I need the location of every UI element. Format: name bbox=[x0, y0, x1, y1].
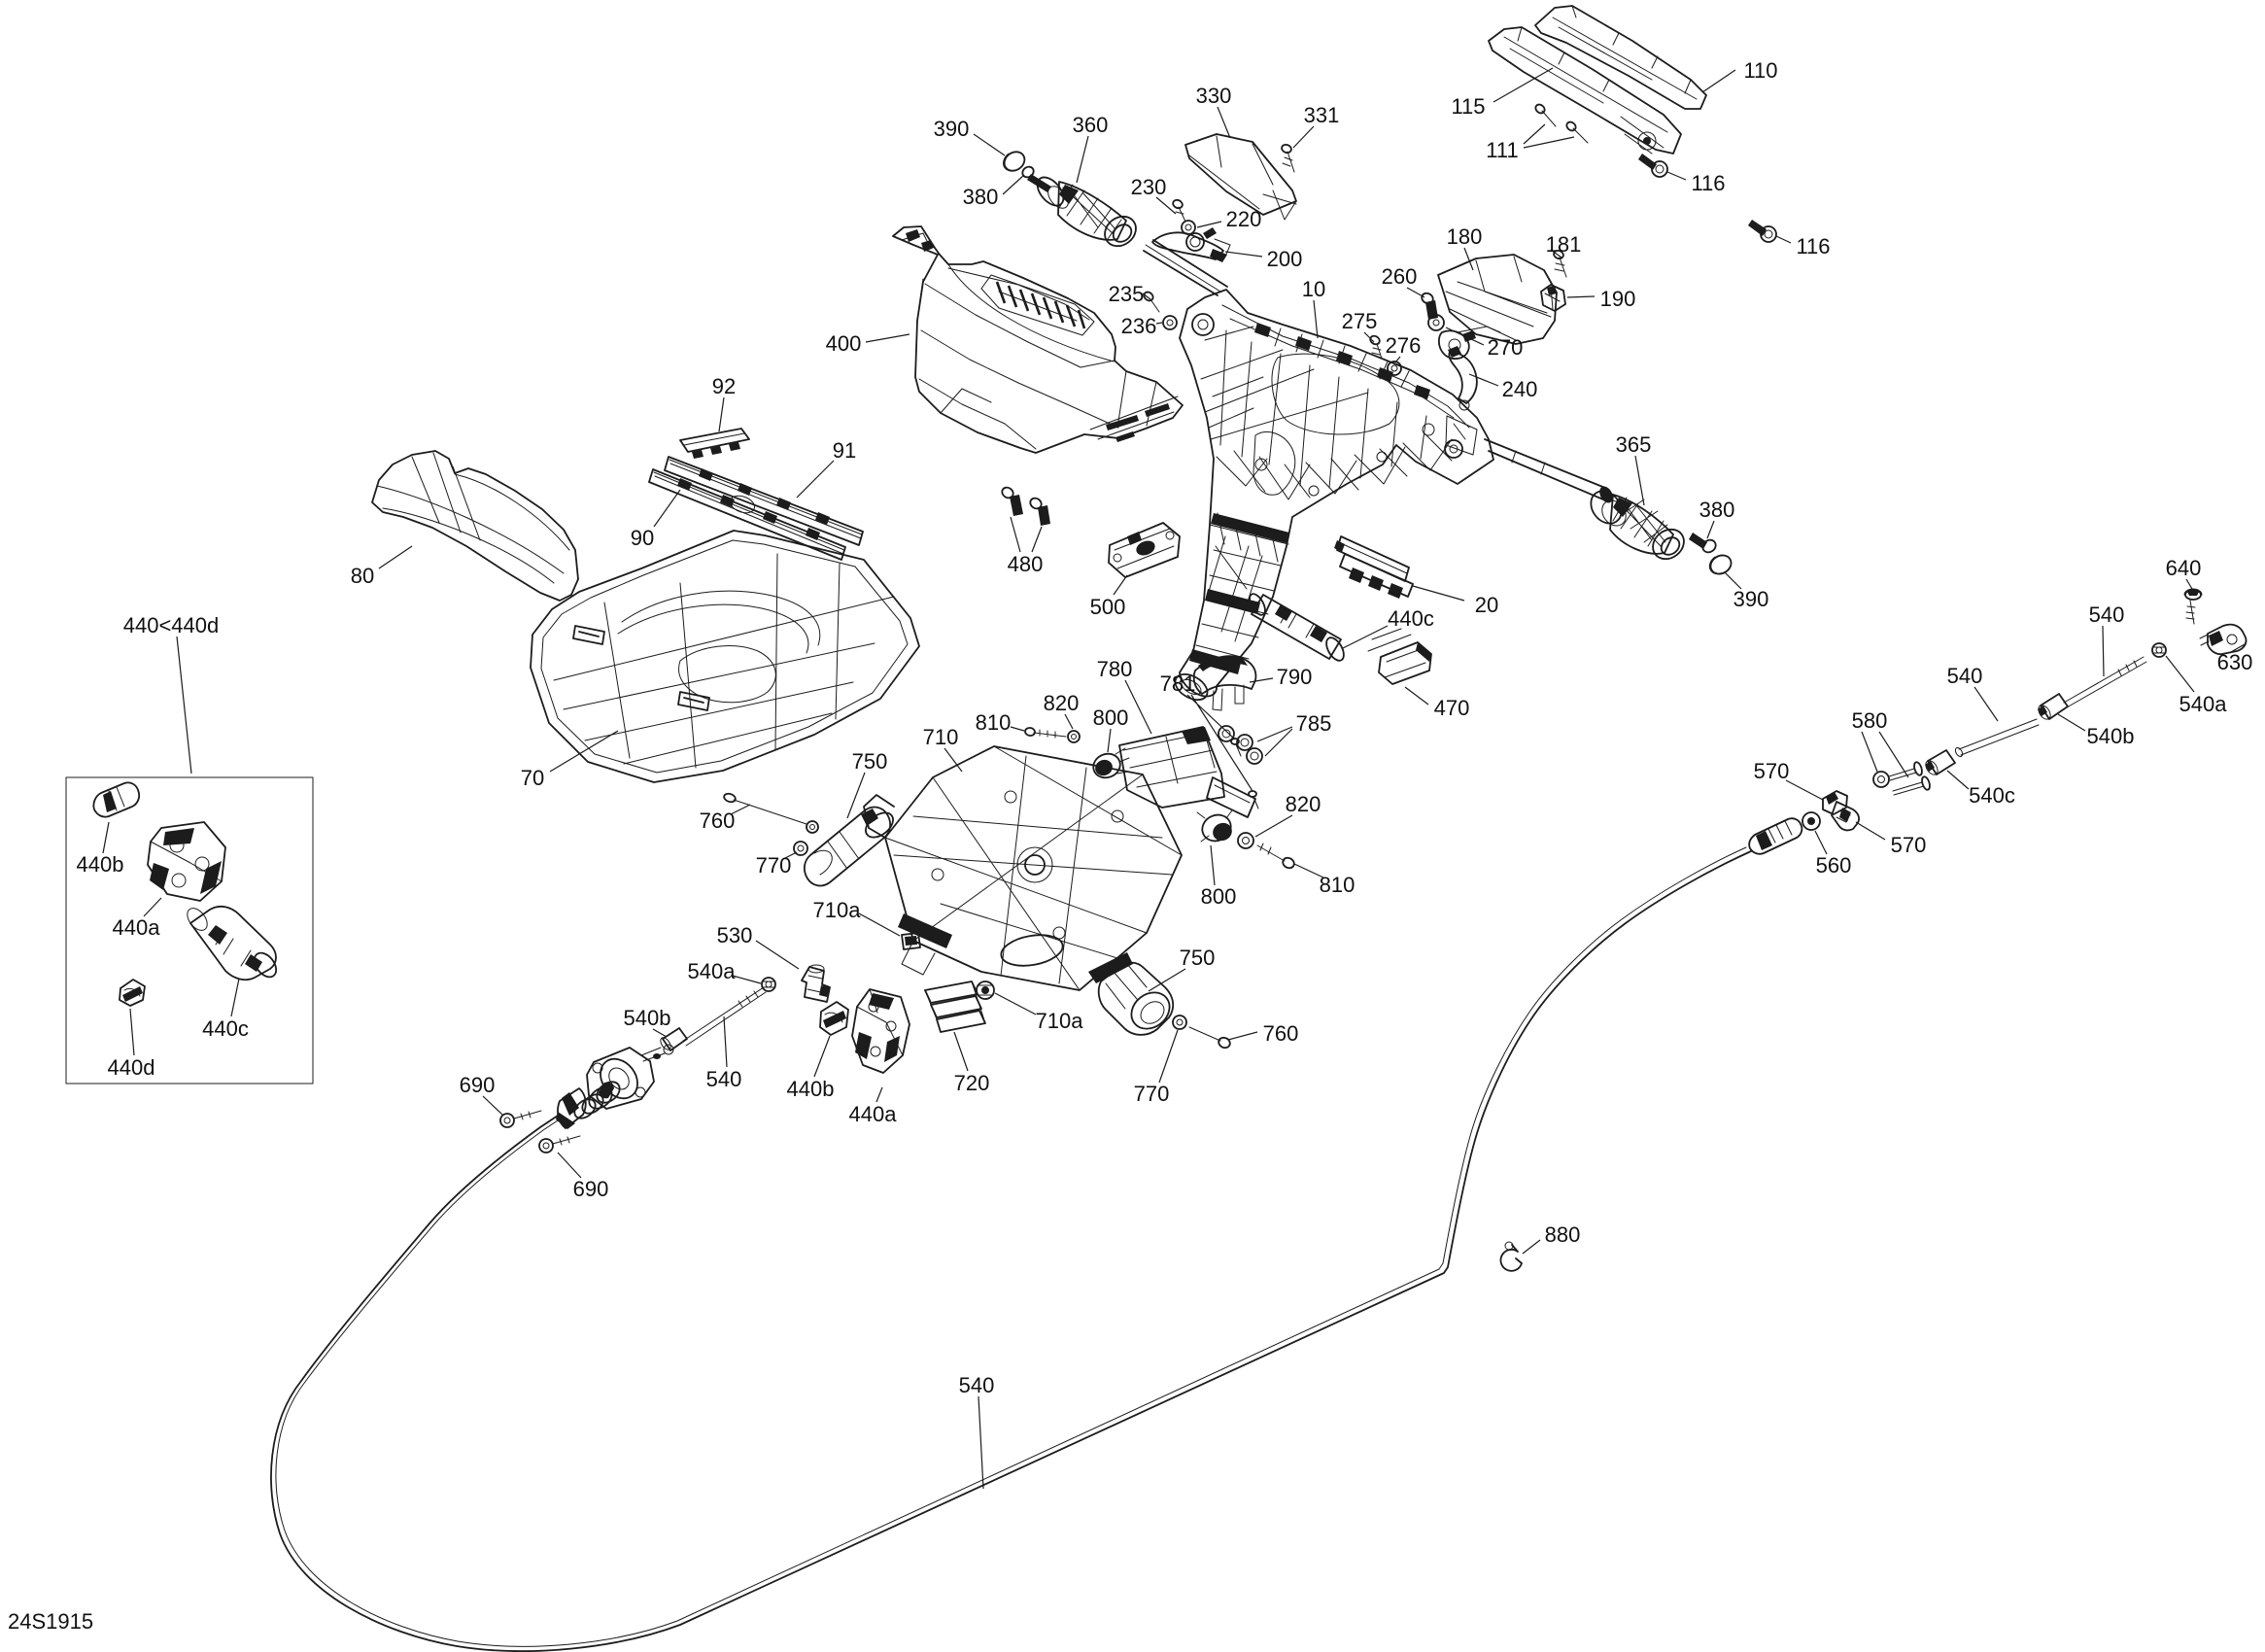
svg-text:570: 570 bbox=[1754, 759, 1790, 783]
svg-text:380: 380 bbox=[1699, 498, 1735, 522]
svg-text:690: 690 bbox=[573, 1177, 609, 1201]
svg-text:781: 781 bbox=[1160, 671, 1196, 696]
svg-text:540b: 540b bbox=[624, 1006, 671, 1030]
svg-text:540c: 540c bbox=[1969, 783, 2015, 808]
svg-text:24S1915: 24S1915 bbox=[8, 1609, 93, 1634]
svg-text:770: 770 bbox=[1134, 1082, 1170, 1106]
svg-text:440a: 440a bbox=[113, 915, 161, 940]
svg-text:480: 480 bbox=[1008, 552, 1044, 576]
svg-text:500: 500 bbox=[1090, 595, 1126, 619]
svg-text:111: 111 bbox=[1486, 138, 1518, 162]
svg-text:690: 690 bbox=[460, 1073, 496, 1097]
svg-text:530: 530 bbox=[717, 923, 753, 947]
svg-text:116: 116 bbox=[1691, 171, 1725, 195]
svg-text:820: 820 bbox=[1286, 792, 1321, 816]
svg-text:236: 236 bbox=[1121, 314, 1157, 338]
svg-text:785: 785 bbox=[1296, 711, 1332, 736]
svg-text:80: 80 bbox=[351, 564, 374, 588]
svg-text:330: 330 bbox=[1196, 84, 1232, 108]
svg-text:240: 240 bbox=[1502, 377, 1538, 401]
svg-text:110: 110 bbox=[1743, 58, 1777, 83]
svg-text:220: 220 bbox=[1226, 207, 1262, 231]
svg-text:540: 540 bbox=[1947, 664, 1983, 688]
svg-text:92: 92 bbox=[712, 374, 736, 398]
svg-text:540a: 540a bbox=[688, 959, 737, 983]
svg-text:180: 180 bbox=[1447, 224, 1483, 249]
svg-text:800: 800 bbox=[1093, 706, 1129, 730]
svg-text:200: 200 bbox=[1267, 247, 1303, 271]
svg-text:790: 790 bbox=[1277, 665, 1313, 689]
svg-text:470: 470 bbox=[1434, 696, 1470, 720]
svg-text:440d: 440d bbox=[108, 1055, 155, 1080]
svg-text:116: 116 bbox=[1796, 234, 1830, 258]
svg-text:710a: 710a bbox=[813, 898, 862, 922]
svg-text:260: 260 bbox=[1382, 264, 1418, 289]
svg-text:276: 276 bbox=[1386, 333, 1422, 358]
svg-text:710: 710 bbox=[923, 725, 959, 749]
svg-text:760: 760 bbox=[1263, 1021, 1299, 1046]
svg-text:235: 235 bbox=[1109, 282, 1145, 306]
svg-text:440b: 440b bbox=[77, 852, 124, 877]
svg-text:800: 800 bbox=[1201, 884, 1237, 909]
svg-text:710a: 710a bbox=[1036, 1009, 1084, 1033]
svg-text:760: 760 bbox=[700, 809, 736, 833]
svg-text:380: 380 bbox=[963, 185, 999, 209]
svg-text:270: 270 bbox=[1488, 335, 1524, 360]
svg-text:770: 770 bbox=[756, 853, 792, 878]
svg-text:570: 570 bbox=[1891, 833, 1927, 857]
svg-text:440b: 440b bbox=[787, 1077, 835, 1101]
svg-text:390: 390 bbox=[1733, 587, 1769, 611]
svg-text:70: 70 bbox=[521, 766, 544, 790]
svg-text:331: 331 bbox=[1304, 103, 1340, 127]
svg-text:540a: 540a bbox=[2179, 692, 2228, 716]
svg-text:91: 91 bbox=[833, 438, 856, 463]
svg-text:360: 360 bbox=[1073, 113, 1109, 137]
svg-text:365: 365 bbox=[1616, 432, 1652, 457]
svg-text:20: 20 bbox=[1475, 593, 1498, 617]
svg-text:440c: 440c bbox=[202, 1016, 249, 1041]
svg-text:780: 780 bbox=[1097, 657, 1133, 681]
svg-text:560: 560 bbox=[1816, 853, 1852, 878]
svg-text:580: 580 bbox=[1852, 708, 1888, 733]
svg-text:10: 10 bbox=[1302, 277, 1325, 301]
svg-text:190: 190 bbox=[1600, 287, 1636, 311]
svg-text:400: 400 bbox=[826, 331, 862, 356]
svg-text:90: 90 bbox=[631, 526, 654, 550]
svg-text:540: 540 bbox=[959, 1373, 995, 1397]
svg-text:440c: 440c bbox=[1388, 606, 1434, 631]
svg-text:275: 275 bbox=[1342, 309, 1378, 333]
svg-text:810: 810 bbox=[1320, 873, 1356, 897]
svg-text:230: 230 bbox=[1131, 175, 1167, 199]
svg-text:820: 820 bbox=[1044, 691, 1080, 715]
svg-text:440a: 440a bbox=[849, 1102, 898, 1126]
svg-text:880: 880 bbox=[1545, 1222, 1581, 1247]
svg-text:540: 540 bbox=[2089, 602, 2125, 627]
svg-text:750: 750 bbox=[1180, 946, 1216, 970]
svg-text:181: 181 bbox=[1546, 232, 1582, 257]
svg-text:720: 720 bbox=[954, 1071, 990, 1095]
svg-text:810: 810 bbox=[976, 710, 1012, 735]
svg-text:750: 750 bbox=[852, 749, 888, 774]
svg-text:440<440d: 440<440d bbox=[123, 613, 220, 637]
svg-text:390: 390 bbox=[934, 117, 970, 141]
svg-text:630: 630 bbox=[2217, 650, 2253, 674]
svg-text:540b: 540b bbox=[2087, 724, 2135, 748]
svg-text:640: 640 bbox=[2166, 556, 2202, 580]
svg-text:115: 115 bbox=[1451, 94, 1485, 119]
svg-text:540: 540 bbox=[706, 1067, 742, 1091]
